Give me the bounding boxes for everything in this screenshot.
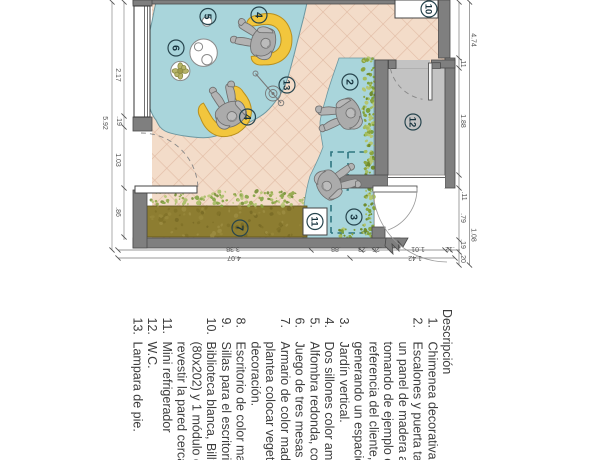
svg-text:1.42: 1.42	[408, 254, 422, 261]
svg-text:3.38: 3.38	[226, 245, 240, 252]
svg-text:.86: .86	[114, 207, 121, 217]
svg-text:Lampara de pie.: Lampara de pie.	[130, 342, 144, 432]
svg-text:10: 10	[422, 4, 433, 15]
svg-text:Sillas para el escritori: Sillas para el escritori	[219, 342, 233, 460]
svg-text:.11: .11	[460, 191, 467, 200]
svg-text:Escalones y puerta tamb: Escalones y puerta tamb	[411, 342, 425, 460]
svg-text:1.88: 1.88	[459, 114, 466, 128]
svg-text:4: 4	[252, 12, 264, 18]
svg-text:.23: .23	[358, 245, 368, 252]
svg-text:5.: 5.	[307, 318, 321, 328]
svg-text:3: 3	[347, 214, 359, 220]
svg-text:13.: 13.	[130, 318, 144, 335]
svg-text:Biblioteca blanca, Billy: Biblioteca blanca, Billy	[204, 342, 218, 460]
svg-text:generando un espacio: generando un espacio	[352, 342, 366, 460]
svg-text:4.74: 4.74	[470, 33, 477, 47]
svg-text:10.: 10.	[204, 318, 218, 335]
svg-text:(80x202) y 1 módulo e: (80x202) y 1 módulo e	[189, 342, 203, 460]
svg-text:revestir la pared cerca: revestir la pared cerca	[175, 342, 189, 460]
svg-text:.11: .11	[459, 58, 466, 67]
svg-text:Alfombra redonda, col: Alfombra redonda, col	[307, 342, 321, 460]
svg-text:12: 12	[406, 117, 417, 128]
svg-text:4: 4	[241, 114, 253, 120]
svg-text:.26: .26	[372, 245, 382, 252]
svg-text:12.: 12.	[145, 318, 159, 335]
svg-text:Jardín vertical.: Jardín vertical.	[337, 342, 351, 423]
svg-text:.79: .79	[459, 213, 466, 223]
svg-text:1.08: 1.08	[470, 228, 477, 242]
svg-text:.19: .19	[115, 116, 122, 126]
svg-text:Armario de color made: Armario de color made	[278, 342, 292, 460]
svg-text:9.: 9.	[219, 318, 233, 328]
svg-text:Mini refrigerador: Mini refrigerador	[160, 342, 174, 433]
svg-text:1.: 1.	[425, 318, 439, 328]
svg-text:8.: 8.	[234, 318, 248, 328]
svg-text:4.: 4.	[322, 318, 336, 328]
svg-text:Descripción: Descripción	[440, 309, 454, 374]
svg-text:5.92: 5.92	[101, 116, 108, 130]
svg-text:1.03: 1.03	[114, 153, 121, 167]
svg-text:7.: 7.	[278, 318, 292, 328]
svg-text:Escritorio de color mad: Escritorio de color mad	[234, 342, 248, 460]
svg-text:tomando de ejemplo e: tomando de ejemplo e	[381, 342, 395, 460]
svg-text:Dos sillones color ama: Dos sillones color ama	[322, 342, 336, 460]
svg-text:3.: 3.	[337, 318, 351, 328]
svg-text:11.: 11.	[160, 318, 174, 334]
svg-text:2.: 2.	[411, 318, 425, 328]
svg-text:4.07: 4.07	[227, 254, 241, 261]
svg-text:plantea colocar veget: plantea colocar veget	[263, 342, 277, 460]
svg-text:.19: .19	[459, 239, 466, 249]
svg-text:Chimenea decorativa: Chimenea decorativa	[425, 342, 439, 460]
svg-text:6.: 6.	[293, 318, 307, 328]
svg-text:1.01: 1.01	[411, 245, 425, 252]
svg-text:.88: .88	[331, 245, 341, 252]
svg-text:decoración.: decoración.	[248, 342, 262, 407]
svg-text:.20: .20	[459, 253, 466, 263]
svg-text:W.C.: W.C.	[145, 342, 159, 369]
svg-text:7: 7	[233, 225, 245, 231]
svg-text:5: 5	[201, 14, 213, 20]
svg-text:6: 6	[169, 45, 181, 51]
svg-text:2: 2	[343, 79, 355, 85]
svg-text:.12: .12	[445, 245, 455, 252]
svg-text:2.17: 2.17	[114, 68, 121, 82]
svg-text:referencia del cliente,: referencia del cliente,	[366, 342, 380, 460]
svg-text:11: 11	[308, 216, 319, 227]
svg-text:Juego de tres mesas d: Juego de tres mesas d	[293, 342, 307, 460]
svg-text:13: 13	[280, 80, 291, 91]
svg-text:un panel de madera ac: un panel de madera ac	[396, 342, 410, 460]
